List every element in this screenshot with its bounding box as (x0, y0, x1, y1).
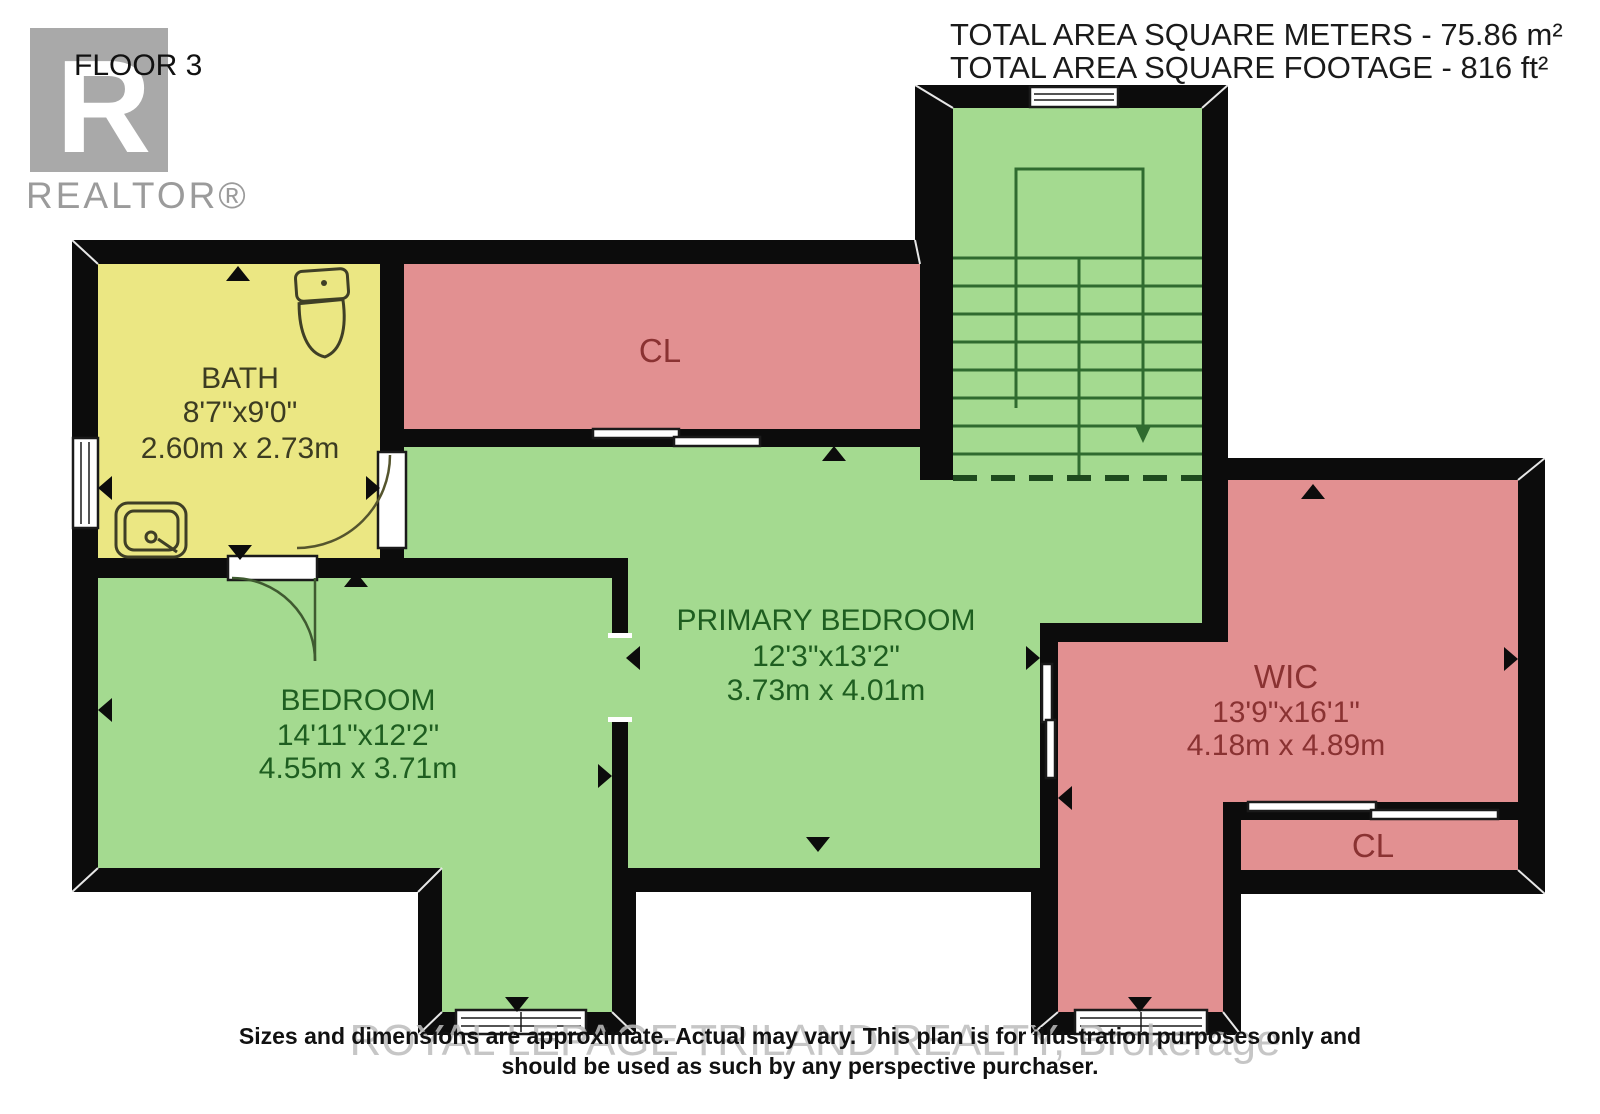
disclaimer-line-2: should be used as such by any perspectiv… (502, 1053, 1099, 1079)
disclaimer-line-1: Sizes and dimensions are approximate. Ac… (239, 1023, 1361, 1049)
stair-window (1030, 87, 1118, 107)
room-bedroom (98, 578, 612, 1012)
footer: ROYAL LEPAGE TRILAND REALTY, Brokerage S… (239, 1016, 1361, 1079)
total-area-imperial: TOTAL AREA SQUARE FOOTAGE - 816 ft² (950, 50, 1548, 85)
bath-dim-m: 2.60m x 2.73m (141, 432, 339, 465)
primary-bedroom-dim-m: 3.73m x 4.01m (727, 674, 925, 707)
bath-dim-ft: 8'7"x9'0" (183, 396, 298, 429)
floor-plan: BATH 8'7"x9'0" 2.60m x 2.73m CL PRIMARY … (72, 85, 1545, 1035)
floor-plan-canvas: R REALTOR® FLOOR 3 TOTAL AREA SQUARE MET… (0, 0, 1600, 1114)
area-summary: TOTAL AREA SQUARE METERS - 75.86 m² TOTA… (950, 17, 1563, 85)
door-jamb (608, 633, 632, 638)
total-area-metric: TOTAL AREA SQUARE METERS - 75.86 m² (950, 17, 1563, 52)
bedroom-dim-ft: 14'11"x12'2" (277, 719, 439, 752)
doorway-opening (612, 638, 628, 718)
floor-label: FLOOR 3 (74, 49, 202, 82)
primary-bedroom-dim-ft: 12'3"x13'2" (752, 640, 900, 673)
bedroom-dim-m: 4.55m x 3.71m (259, 752, 457, 785)
floorplan-page: R REALTOR® FLOOR 3 TOTAL AREA SQUARE MET… (0, 0, 1600, 1114)
closet-bottom-label: CL (1352, 827, 1394, 864)
closet-top-label: CL (639, 332, 681, 369)
wic-dim-m: 4.18m x 4.89m (1187, 729, 1385, 762)
primary-bedroom-label: PRIMARY BEDROOM (677, 604, 976, 637)
door-jamb (608, 717, 632, 722)
wic-label: WIC (1254, 658, 1318, 695)
bath-window (73, 438, 98, 528)
bedroom-label: BEDROOM (280, 684, 435, 717)
bath-label: BATH (201, 362, 279, 395)
wic-dim-ft: 13'9"x16'1" (1212, 696, 1360, 729)
realtor-brand-label: REALTOR® (26, 175, 249, 216)
branding: R REALTOR® FLOOR 3 (26, 28, 249, 216)
